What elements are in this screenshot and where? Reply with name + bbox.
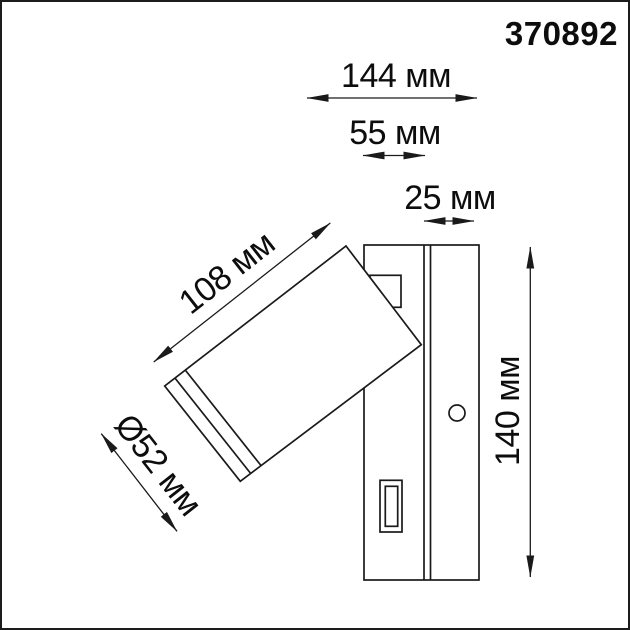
dimension-label-plate-depth: 25 мм [404,181,496,215]
dimension-label-height: 140 мм [491,356,525,466]
lamp-technical-drawing [2,2,630,630]
dimension-label-body-depth: 55 мм [349,116,441,150]
dimension-label-total-depth: 144 мм [341,59,451,93]
dimension-drawing-page: 370892 [0,0,630,630]
